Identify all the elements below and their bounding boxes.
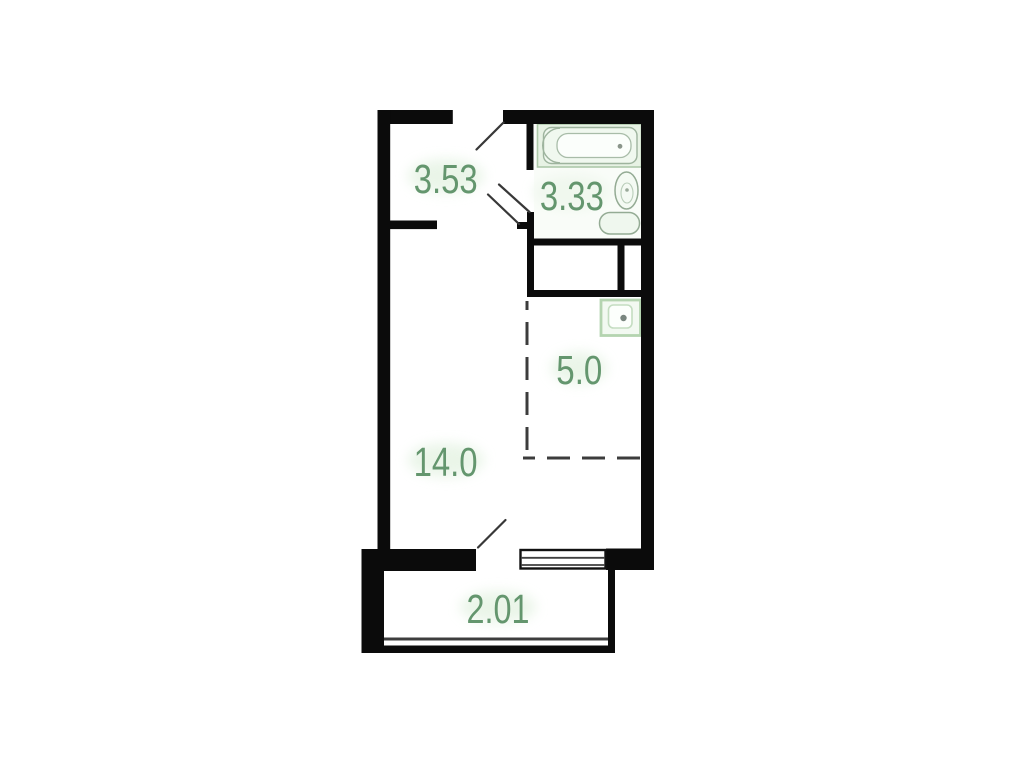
svg-text:14.0: 14.0	[414, 439, 478, 485]
svg-text:3.53: 3.53	[414, 156, 478, 202]
svg-text:3.33: 3.33	[540, 173, 604, 219]
svg-text:5.0: 5.0	[556, 347, 602, 393]
svg-text:2.01: 2.01	[467, 586, 530, 632]
